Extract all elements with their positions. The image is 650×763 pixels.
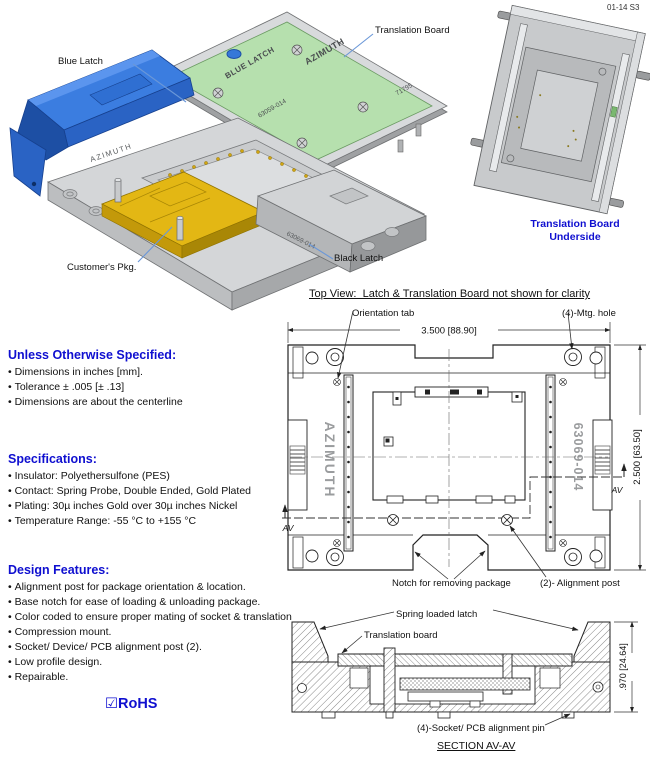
callout-customers-pkg: Customer's Pkg.: [67, 262, 136, 273]
pcb-pin: [322, 712, 335, 718]
dim-section-text: .970 [24.64]: [618, 643, 628, 691]
probe-region: [400, 678, 530, 690]
board-blue-dot: [227, 50, 241, 59]
iso-assembly-view: BLUE LATCH AZIMUTH 63059-014 71795 AZIMU…: [0, 0, 470, 300]
board-pin: [416, 124, 421, 136]
top-view-marking-brand: AZIMUTH: [322, 422, 338, 499]
callout-black-latch: Black Latch: [334, 253, 383, 264]
dim-width-text: 3.500 [88.90]: [421, 326, 476, 337]
board-pin: [398, 140, 403, 152]
section-view-drawing: .970 [24.64]: [280, 598, 650, 763]
latch-pin-hole: [32, 182, 36, 186]
translation-board-section: [338, 654, 572, 666]
dim-height-text: 2.500 [63.50]: [632, 429, 643, 484]
section-label-right: AV: [611, 485, 624, 495]
rohs-badge: ☑RoHS: [105, 696, 157, 712]
underside-board-shape: [462, 3, 650, 217]
pin-section: [384, 648, 395, 712]
callout-blue-latch: Blue Latch: [58, 56, 103, 67]
underside-caption-line2: Underside: [495, 231, 650, 244]
underside-view: [478, 8, 646, 216]
top-view-title: Top View: Latch & Translation Board not …: [309, 288, 590, 300]
latch-block-right: [574, 622, 610, 662]
datasheet-page: 01-14 S3 BLUE LATCH AZIMUTH 63059-014 71…: [0, 0, 650, 763]
underside-caption-line1: Translation Board: [495, 218, 650, 231]
callout-translation-board: Translation Board: [375, 25, 450, 36]
pcb-pin: [438, 712, 450, 718]
section-label-left: AV: [282, 523, 295, 533]
top-view-drawing: 3.500 [88.90] 2.500 [63.50]: [280, 305, 650, 600]
underside-caption: Translation Board Underside: [495, 218, 650, 244]
